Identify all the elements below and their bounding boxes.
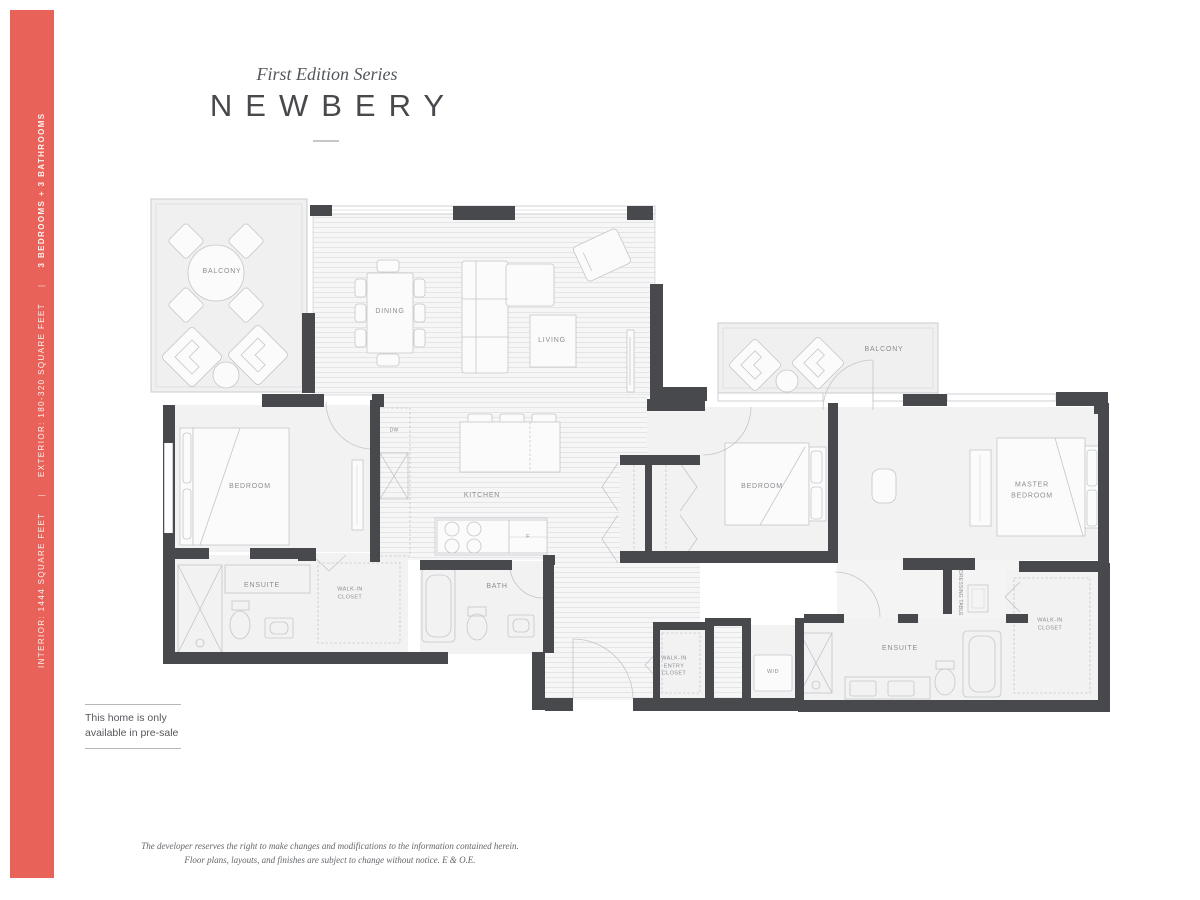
label-bath: BATH (486, 582, 507, 593)
presale-note-text: This home is only available in pre-sale (85, 705, 181, 748)
presale-rule-bottom (85, 748, 181, 749)
sidebar-separator: | (37, 477, 46, 512)
floor-plan-drawing (150, 197, 1110, 722)
disclaimer-text: The developer reserves the right to make… (50, 840, 610, 867)
label-dining: DINING (375, 307, 404, 318)
sidebar-exterior-text: EXTERIOR: 180-320 SQUARE FEET (37, 303, 46, 477)
floor-plan: BALCONY DINING LIVING KITCHEN BEDROOM EN… (150, 197, 1110, 722)
label-dishwasher: DW (390, 427, 399, 435)
label-dressing-table: DRESSING TABLE (955, 570, 963, 616)
page-title: NEWBERY (197, 88, 457, 124)
series-subtitle: First Edition Series (257, 64, 398, 85)
label-balcony-2: BALCONY (864, 345, 903, 356)
label-ensuite-2: ENSUITE (882, 644, 918, 655)
label-bedroom-1: BEDROOM (229, 482, 271, 493)
label-bedroom-2: BEDROOM (741, 482, 783, 493)
presale-note-block: This home is only available in pre-sale (85, 704, 181, 749)
label-master-bedroom: MASTER BEDROOM (1011, 481, 1053, 502)
sidebar-separator: | (37, 268, 46, 303)
label-balcony-1: BALCONY (202, 267, 241, 278)
floor-plan-sheet: INTERIOR: 1444 SQUARE FEET|EXTERIOR: 180… (0, 0, 1200, 900)
label-entry-closet: WALK-IN ENTRY CLOSET (661, 655, 687, 678)
title-divider (313, 140, 339, 142)
label-walkin-closet-1: WALK-IN CLOSET (337, 586, 363, 601)
label-kitchen: KITCHEN (464, 491, 500, 502)
coral-sidebar: INTERIOR: 1444 SQUARE FEET|EXTERIOR: 180… (10, 10, 54, 878)
sidebar-vertical-text: INTERIOR: 1444 SQUARE FEET|EXTERIOR: 180… (20, 68, 64, 888)
label-living: LIVING (538, 336, 566, 347)
label-fridge: F (526, 534, 530, 542)
label-walkin-closet-2: WALK-IN CLOSET (1037, 617, 1063, 632)
sidebar-interior-text: INTERIOR: 1444 SQUARE FEET (37, 512, 46, 668)
label-ensuite-1: ENSUITE (244, 581, 280, 592)
label-washer-dryer: W/D (767, 669, 779, 677)
sidebar-bedbath-text: 3 BEDROOMS + 3 BATHROOMS (37, 112, 46, 267)
